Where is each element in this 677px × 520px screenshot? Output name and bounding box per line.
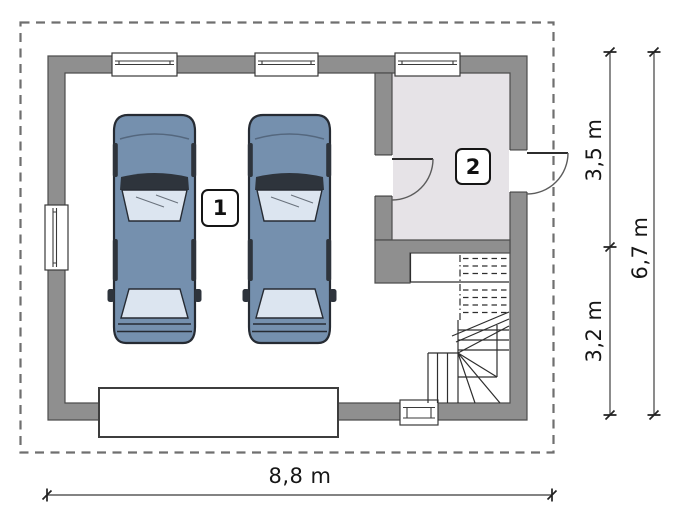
room-1-label: 1 — [201, 189, 239, 227]
window-top-left — [112, 53, 177, 76]
window-bottom-wall — [400, 400, 438, 425]
stairs-icon — [410, 253, 509, 403]
room-1-number: 1 — [213, 196, 228, 220]
room-2-label: 2 — [455, 148, 491, 185]
garage-door-symbol — [99, 388, 338, 437]
window-left-wall — [45, 205, 68, 270]
window-top-middle — [255, 53, 318, 76]
window-room2 — [395, 53, 460, 76]
dimension-right-upper: 3,5 m — [582, 90, 606, 210]
dimension-line-bottom — [43, 489, 557, 502]
room-2-floor — [378, 70, 513, 245]
room-2-number: 2 — [466, 155, 481, 179]
floor-plan: 1 2 8,8 m 3,5 m 3,2 m 6,7 m — [0, 0, 677, 520]
door-room2-exterior — [509, 150, 568, 194]
car-icon — [243, 115, 337, 343]
floor-plan-canvas — [0, 0, 677, 520]
dimension-right-total: 6,7 m — [628, 188, 652, 308]
car-icon — [108, 115, 202, 343]
dimension-bottom-width: 8,8 m — [240, 464, 360, 488]
dimension-right-lower: 3,2 m — [582, 271, 606, 391]
